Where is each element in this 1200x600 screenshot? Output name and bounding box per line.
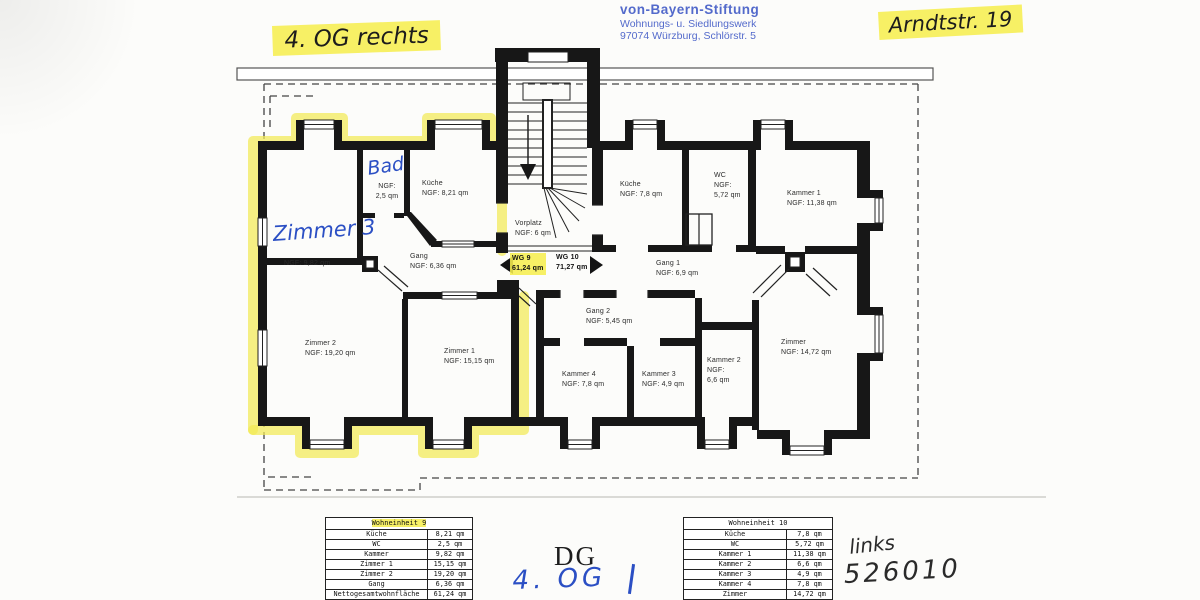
wohneinheit-9-table: Wohneinheit 9 Küche8,21 qm WC2,5 qm Kamm… (325, 517, 473, 600)
scanned-floor-plan-page: von-Bayern-Stiftung Wohnungs- u. Siedlun… (0, 0, 1200, 600)
table-row: Zimmer 219,20 qm (326, 570, 473, 580)
table-row: Kammer 111,38 qm (684, 550, 833, 560)
room-label-kammer1: Kammer 1 NGF: 11,38 qm (787, 189, 837, 209)
table-row: Zimmer 115,15 qm (326, 560, 473, 570)
room-label-kueche-wg9: Küche NGF: 8,21 qm (422, 179, 468, 199)
table-row: Kammer 26,6 qm (684, 560, 833, 570)
wohneinheit-10-table-clip: Wohneinheit 10 Küche7,8 qm WC5,72 qm Kam… (683, 517, 833, 600)
table-header-row: Wohneinheit 9 (326, 518, 473, 530)
floor-plan-drawing (0, 0, 1200, 600)
side-hand-note: links (848, 530, 896, 559)
room-label-zimmer3-ngf: NGF: 9,82 qm (284, 259, 330, 269)
stair-down-arrow-icon (520, 164, 536, 180)
wohneinheit-9-title: Wohneinheit 9 (372, 519, 427, 527)
wg9-unit-label: WG 9 61,24 qm (510, 253, 546, 275)
room-label-zimmer1: Zimmer 1 NGF: 15,15 qm (444, 347, 494, 367)
stamp-line-2: Wohnungs- u. Siedlungswerk (620, 18, 759, 30)
room-label-gang2: Gang 2 NGF: 5,45 qm (586, 307, 632, 327)
table-row: Zimmer14,72 qm (684, 590, 833, 600)
table-row: WC2,5 qm (326, 540, 473, 550)
table-header-row: Wohneinheit 10 (684, 518, 833, 530)
room-label-kammer3: Kammer 3 NGF: 4,9 qm (642, 370, 684, 390)
top-left-floor-note: 4. OG rechts (272, 20, 441, 56)
room-label-gang-wg9: Gang NGF: 6,36 qm (410, 252, 456, 272)
room-label-gang1: Gang 1 NGF: 6,9 qm (656, 259, 698, 279)
table-row: Küche8,21 qm (326, 530, 473, 540)
stamp-line-3: 97074 Würzburg, Schlörstr. 5 (620, 30, 759, 42)
room-label-zimmer2: Zimmer 2 NGF: 19,20 qm (305, 339, 355, 359)
table-row: Nettogesamtwohnfläche61,24 qm (326, 590, 473, 600)
room-label-kammer2: Kammer 2 NGF: 6,6 qm (707, 356, 741, 386)
wohneinheit-10-title: Wohneinheit 10 (684, 518, 833, 530)
wohneinheit-10-table: Wohneinheit 10 Küche7,8 qm WC5,72 qm Kam… (683, 517, 833, 600)
room-label-wc-wg10: WC NGF: 5,72 qm (714, 171, 741, 201)
number-hand-note: 526010 (843, 554, 962, 590)
staircase (508, 83, 587, 238)
room-label-kammer4: Kammer 4 NGF: 7,8 qm (562, 370, 604, 390)
room-label-vorplatz: Vorplatz NGF: 6 qm (515, 219, 551, 239)
roof-ridge-band (237, 68, 933, 80)
floor-hand-note: 4. OG (512, 563, 607, 596)
room-label-zimmer-wg10: Zimmer NGF: 14,72 qm (781, 338, 831, 358)
table-row: Kammer 47,8 qm (684, 580, 833, 590)
table-row: Kammer 34,9 qm (684, 570, 833, 580)
table-row: WC5,72 qm (684, 540, 833, 550)
wg10-direction-arrow-icon (590, 256, 603, 274)
table-row: Kammer9,82 qm (326, 550, 473, 560)
wg10-unit-label: WG 10 71,27 qm (556, 253, 588, 273)
table-row: Gang6,36 qm (326, 580, 473, 590)
stamp-line-1: von-Bayern-Stiftung (620, 2, 759, 18)
room-label-bad-ngf: NGF: 2,5 qm (368, 182, 406, 202)
windows (258, 120, 883, 455)
room-label-kueche-wg10: Küche NGF: 7,8 qm (620, 180, 662, 200)
table-row: Küche7,8 qm (684, 530, 833, 540)
foundation-stamp: von-Bayern-Stiftung Wohnungs- u. Siedlun… (620, 2, 759, 43)
